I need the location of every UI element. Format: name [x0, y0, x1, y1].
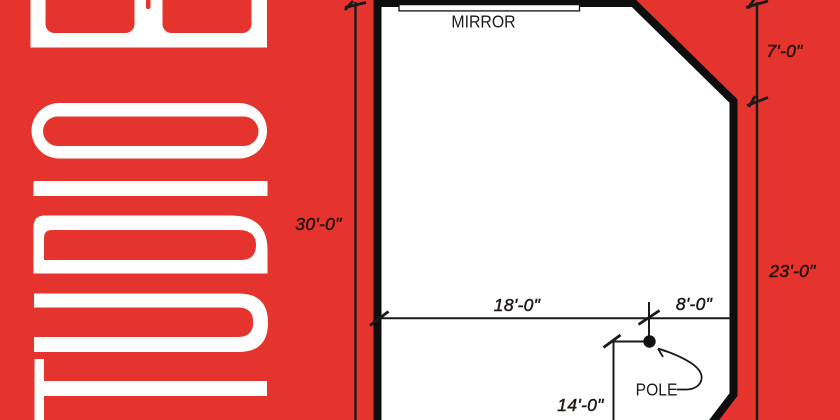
svg-text:POLE: POLE: [636, 379, 678, 399]
svg-text:23'-0": 23'-0": [768, 261, 816, 281]
svg-text:18'-0": 18'-0": [494, 295, 541, 315]
svg-text:30'-0": 30'-0": [295, 214, 342, 234]
svg-text:8'-0": 8'-0": [676, 294, 713, 314]
svg-text:MIRROR: MIRROR: [451, 12, 515, 32]
svg-text:14'-0": 14'-0": [557, 395, 604, 415]
svg-text:7'-0": 7'-0": [766, 41, 803, 61]
